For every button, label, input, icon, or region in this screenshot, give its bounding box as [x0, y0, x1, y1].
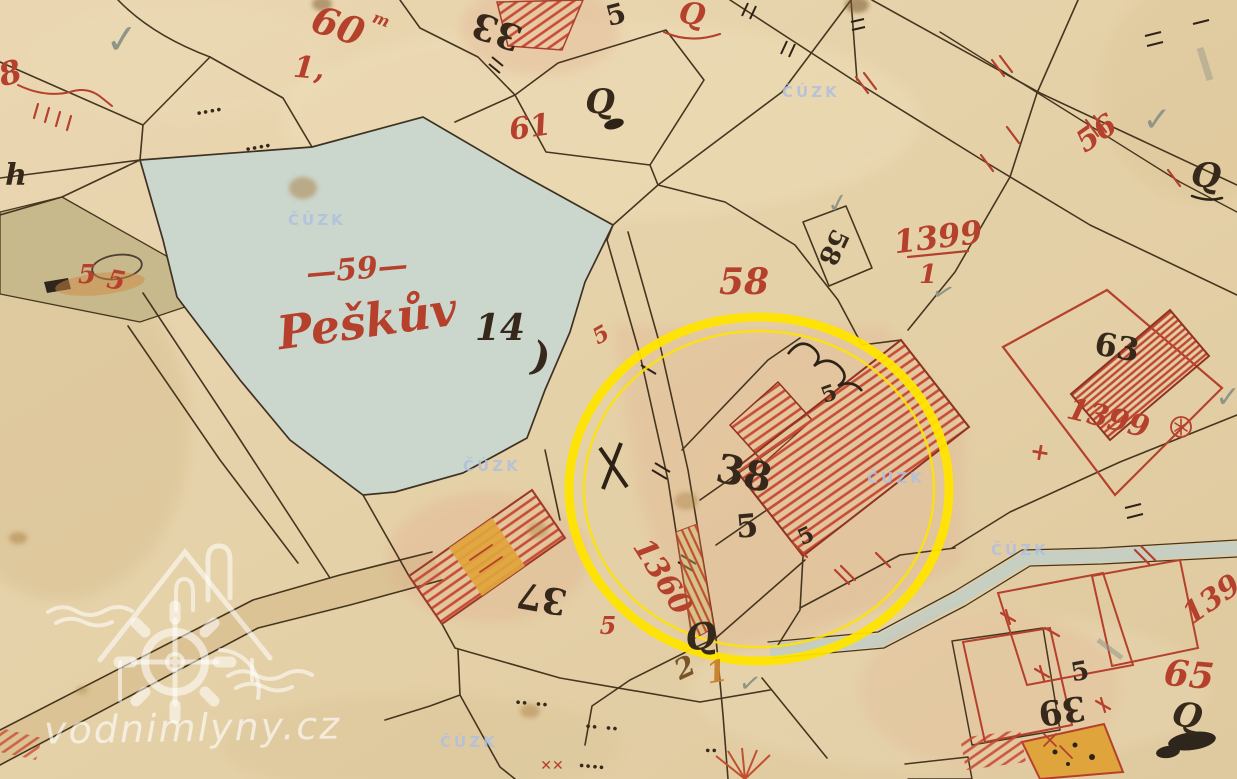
map-base	[0, 0, 1237, 779]
map-canvas: 60m1,335QQ6156Q✓✓✓—59—Peškův14)585813991…	[0, 0, 1237, 779]
